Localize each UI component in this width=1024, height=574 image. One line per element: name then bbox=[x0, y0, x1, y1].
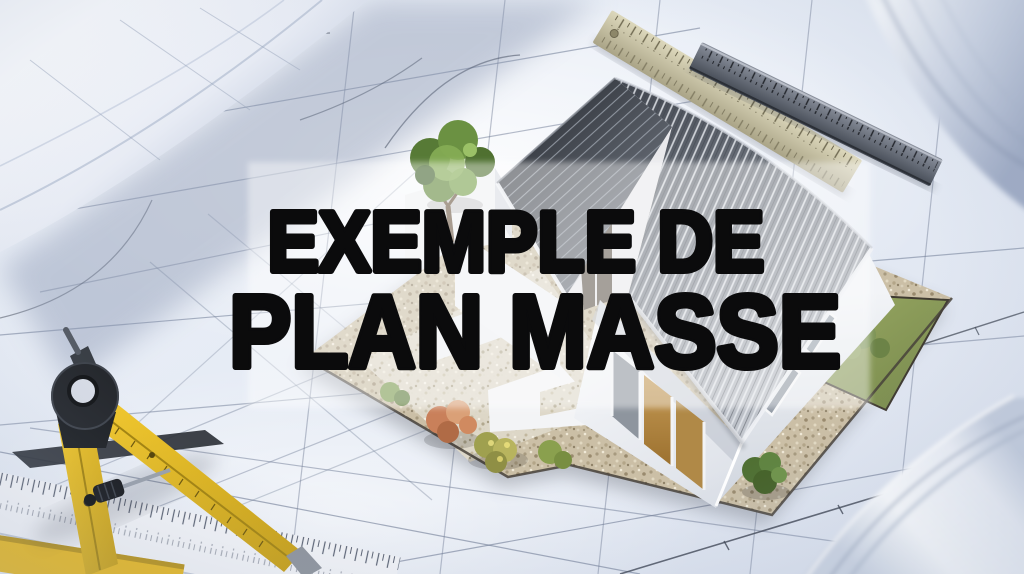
hero-image: EXEMPLE DE PLAN MASSE bbox=[0, 0, 1024, 574]
title-line-2: PLAN MASSE bbox=[229, 274, 841, 389]
blueprint-scene: EXEMPLE DE PLAN MASSE bbox=[0, 0, 1024, 574]
page-title: EXEMPLE DE PLAN MASSE bbox=[229, 195, 841, 389]
